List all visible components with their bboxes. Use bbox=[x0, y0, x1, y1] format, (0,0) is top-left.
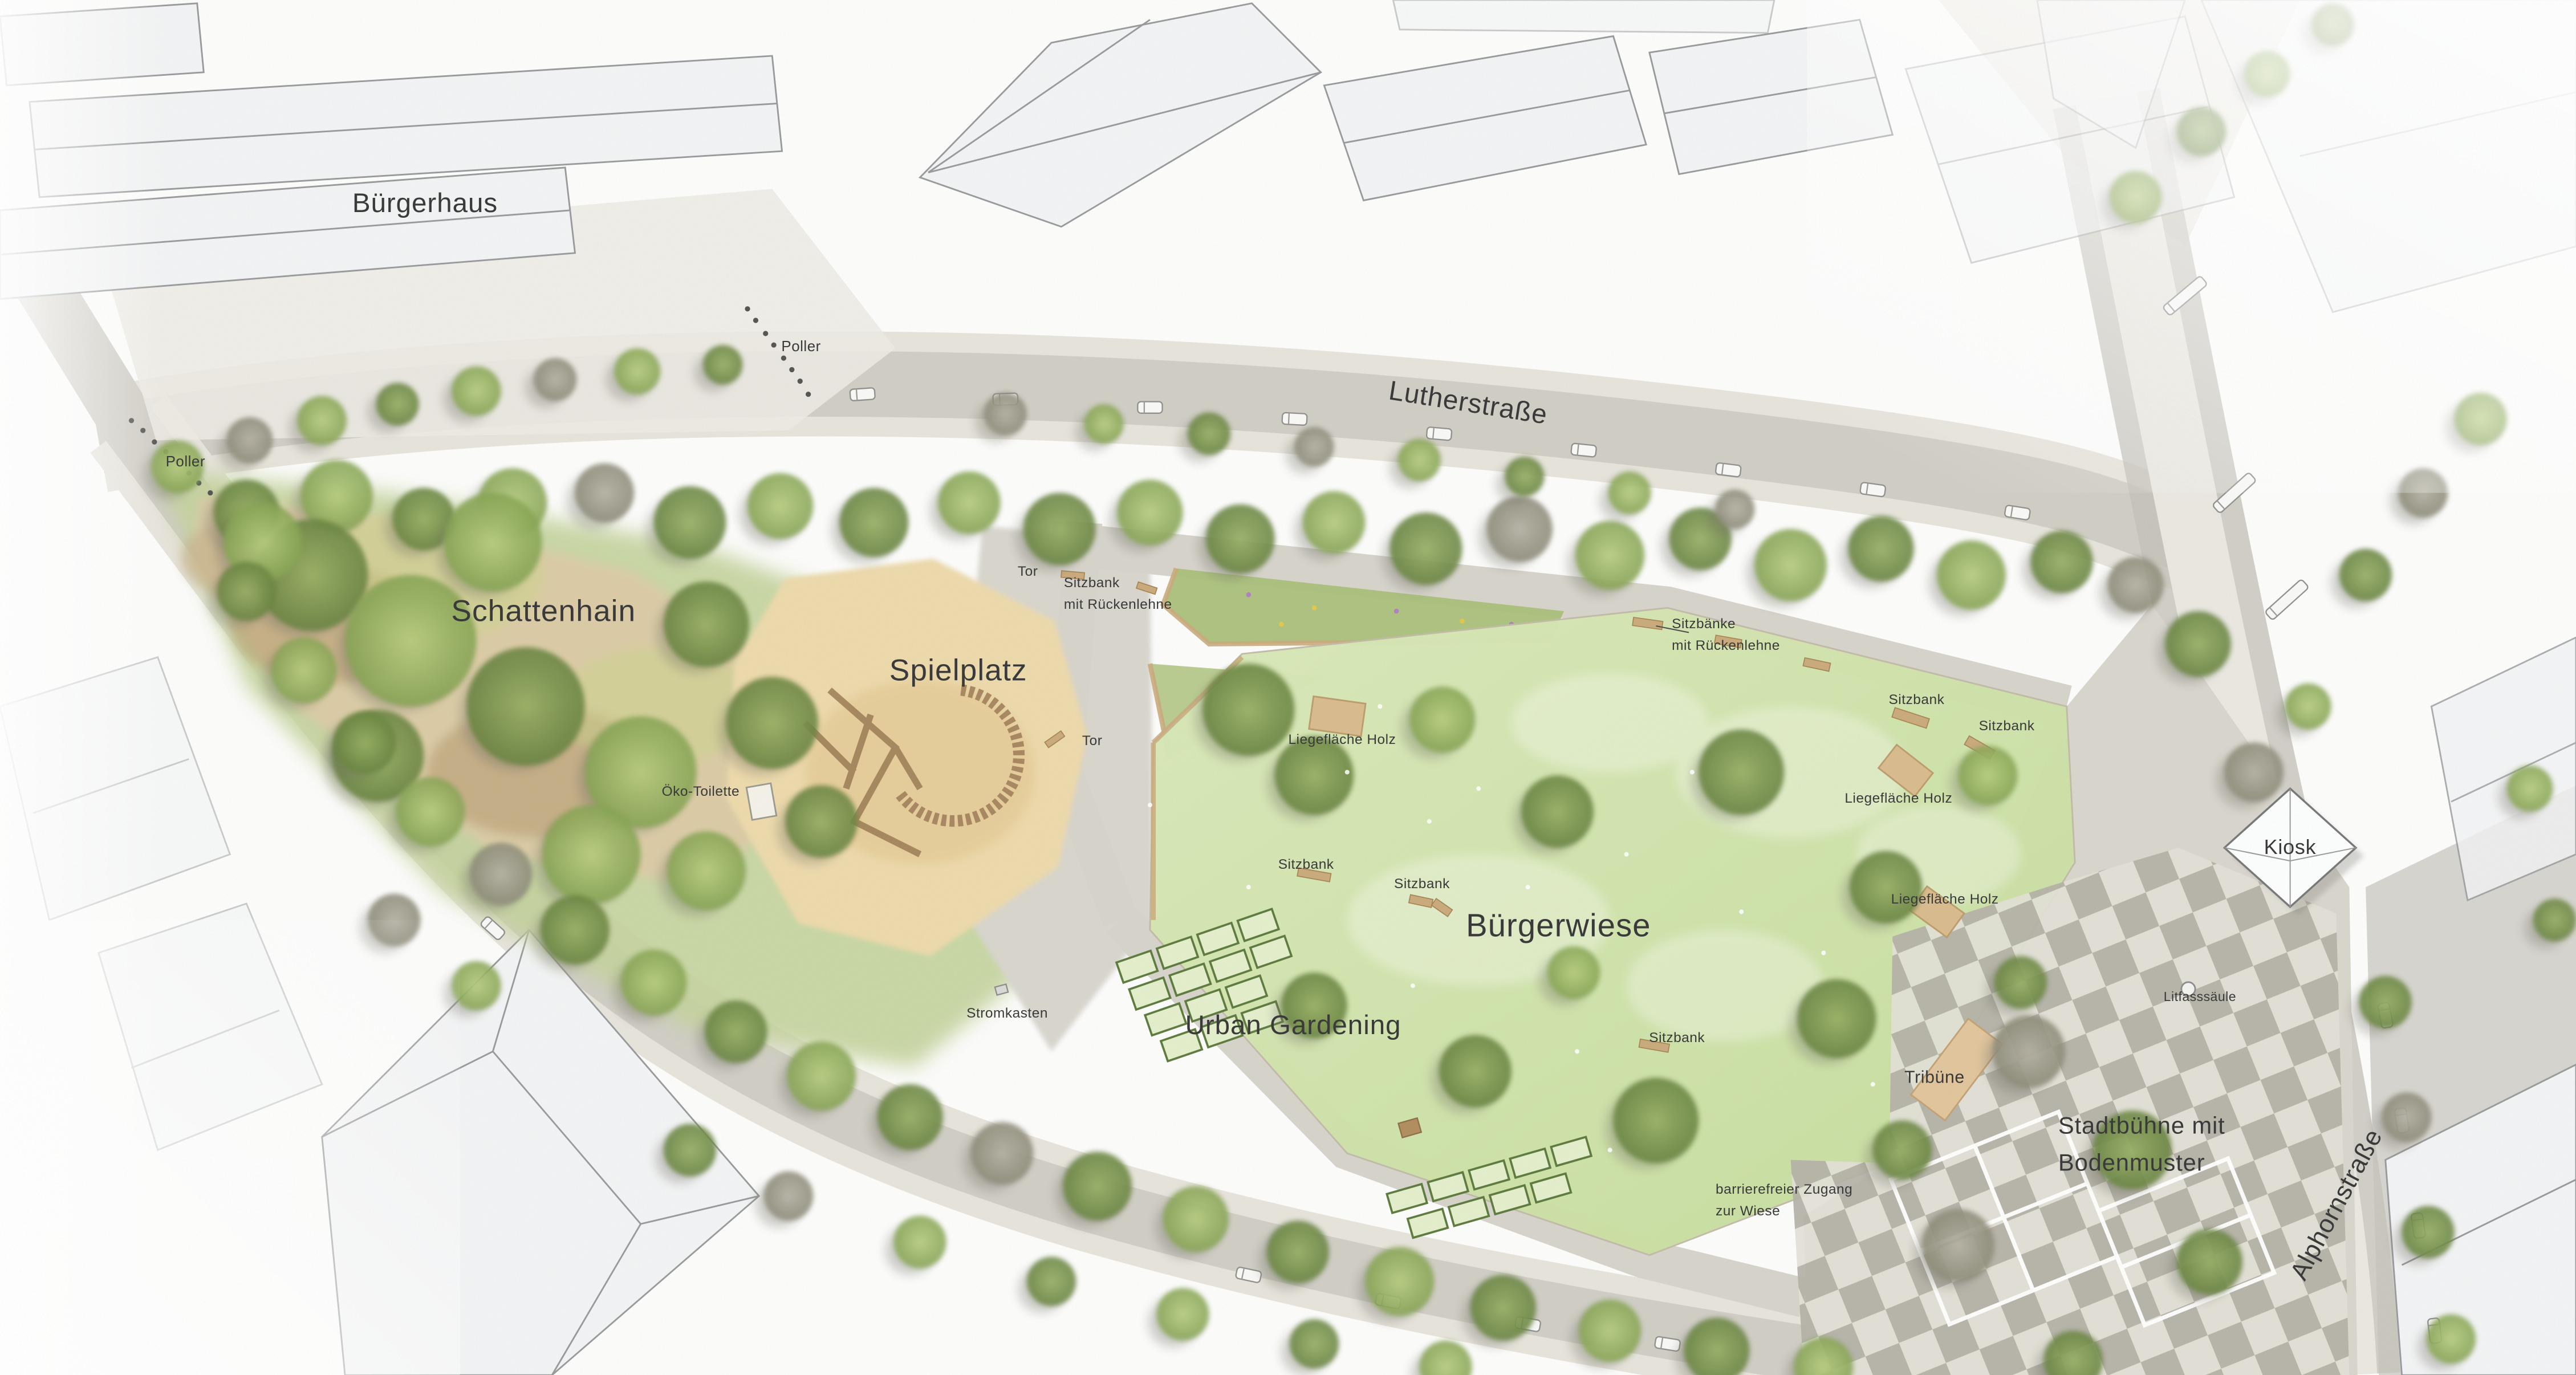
paper-grain bbox=[0, 0, 2576, 1375]
site-plan: BürgerhausPollerPollerLutherstraßeSchatt… bbox=[0, 0, 2576, 1375]
plan-graphics bbox=[0, 0, 2576, 1375]
